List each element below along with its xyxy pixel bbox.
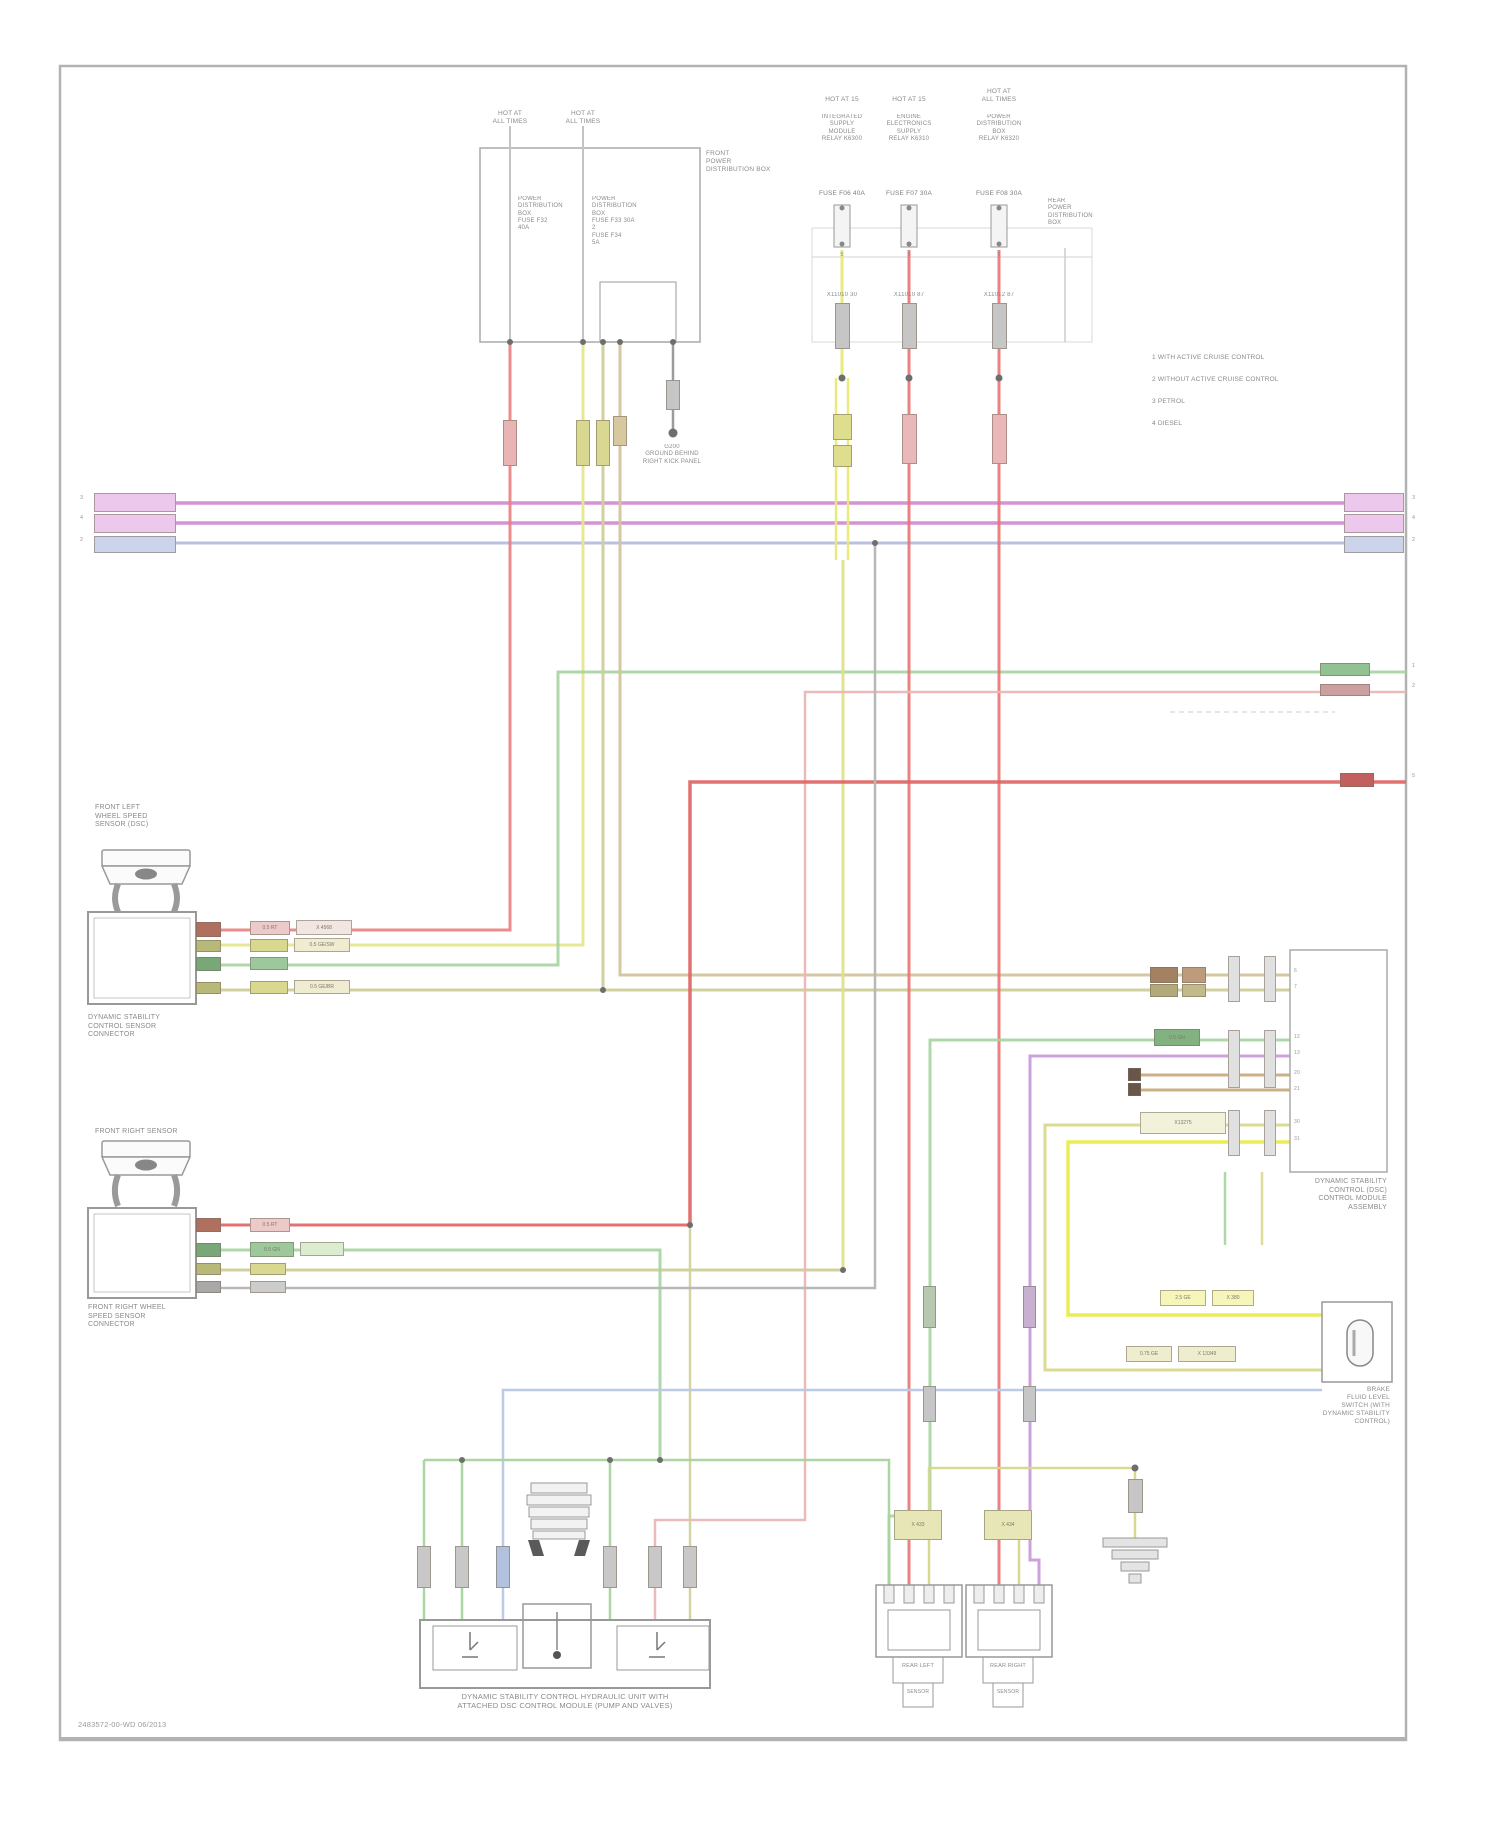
pin-slab xyxy=(1228,956,1240,1002)
bus-connector xyxy=(94,514,176,533)
pin-chip xyxy=(196,982,221,994)
wiring-canvas xyxy=(0,0,1500,1828)
fuse2-header: HOT AT ALL TIMES xyxy=(543,110,623,126)
tick-right-6: 5 xyxy=(1412,773,1415,780)
conn-chip xyxy=(992,303,1007,349)
wire-violet-module xyxy=(1030,1056,1290,1585)
wire-green-bottom xyxy=(424,1460,889,1620)
conn-chip xyxy=(1128,1479,1143,1513)
front-power-box-label: FRONT POWER DISTRIBUTION BOX xyxy=(706,150,771,174)
wire-green-sensor1 xyxy=(197,672,1406,965)
conn-chip xyxy=(923,1386,936,1422)
dsc-module-label: DYNAMIC STABILITY CONTROL (DSC) CONTROL … xyxy=(1237,1178,1387,1212)
bus-connector xyxy=(94,536,176,553)
sensor2-top-label: FRONT RIGHT SENSOR xyxy=(95,1128,178,1137)
brake-fluid-switch xyxy=(1322,1302,1392,1382)
conn-chip xyxy=(648,1546,662,1588)
wire-label: 2.5 GE xyxy=(1160,1290,1206,1306)
bus-connector xyxy=(1344,536,1404,553)
legend-row-3: 3 PETROL xyxy=(1152,398,1185,406)
wire-label xyxy=(250,981,288,994)
wheel-speed-sensor-1 xyxy=(88,850,196,1004)
wire-label xyxy=(250,1281,286,1293)
conn-chip xyxy=(1023,1286,1036,1328)
conn-chip xyxy=(455,1546,469,1588)
pin-slab xyxy=(1264,1030,1276,1088)
fusebox-col2: POWER DISTRIBUTION BOX FUSE F33 30A 2 FU… xyxy=(592,196,637,247)
conn-chip xyxy=(833,445,852,467)
junction-dots xyxy=(459,339,1139,1472)
conn-chip xyxy=(496,1546,510,1588)
pin-chip xyxy=(196,957,221,971)
conn-chip xyxy=(503,420,517,466)
pin-slab xyxy=(1228,1110,1240,1156)
wire-khaki-ground2 xyxy=(929,1468,1135,1585)
shield-terminal xyxy=(1128,1083,1141,1096)
ground1-label: G200 GROUND BEHIND RIGHT KICK PANEL xyxy=(602,444,742,466)
conn-chip xyxy=(596,420,610,466)
relay3-header: HOT AT ALL TIMES xyxy=(949,88,1049,104)
wire-yellow-sensor1 xyxy=(197,342,583,945)
bus-connector xyxy=(1344,493,1404,512)
rear-left-sensor-label: REAR LEFT xyxy=(893,1663,943,1670)
relay3-body: POWER DISTRIBUTION BOX RELAY K6320 xyxy=(949,114,1049,143)
wire-yellow-relay1 xyxy=(197,250,848,1270)
pin-chip xyxy=(196,1243,221,1257)
wire-red-sensor1 xyxy=(197,342,510,930)
module-pin-12: 12 xyxy=(1294,1034,1300,1040)
wire-label xyxy=(1340,773,1374,787)
relay2-pin: 3 xyxy=(859,252,959,259)
module-pin-30: 30 xyxy=(1294,1119,1300,1125)
ground-symbol xyxy=(1103,1538,1167,1583)
pin-slab xyxy=(1264,1110,1276,1156)
wire-label: 0.5 GN xyxy=(250,1242,294,1257)
wire-label: X13275 xyxy=(1140,1112,1226,1134)
wire-tan-module xyxy=(620,342,1290,975)
wire-label: 0.5 RT xyxy=(250,1218,290,1232)
conn-chip xyxy=(835,303,850,349)
relay2-body: ENGINE ELECTRONICS SUPPLY RELAY K6310 xyxy=(859,114,959,143)
wire-label: X 380 xyxy=(1212,1290,1254,1306)
tick-right-4: 1 xyxy=(1412,663,1415,670)
hydraulic-unit-label: DYNAMIC STABILITY CONTROL HYDRAULIC UNIT… xyxy=(365,1692,765,1710)
sensor1-top-label: FRONT LEFT WHEEL SPEED SENSOR (DSC) xyxy=(95,804,148,830)
wire-label: X 434 xyxy=(984,1510,1032,1540)
pin-chip xyxy=(196,1281,221,1293)
wire-label: 0.5 GE/BR xyxy=(294,980,350,994)
pin-chip xyxy=(196,1218,221,1232)
tick-right-2: 4 xyxy=(1412,515,1415,522)
conn-chip xyxy=(683,1546,697,1588)
wire-label xyxy=(300,1242,344,1256)
bus-connector xyxy=(94,493,176,512)
conn-chip xyxy=(902,414,917,464)
wire-label xyxy=(250,1263,286,1275)
conn-chip xyxy=(992,414,1007,464)
relay2-header: HOT AT 15 xyxy=(859,96,959,104)
relay3-conn: X11012 87 xyxy=(949,292,1049,299)
wire-label: X 13349 xyxy=(1178,1346,1236,1362)
wire-label xyxy=(1320,663,1370,676)
wire-label: 0.5 GN xyxy=(1154,1029,1200,1046)
pin-chip xyxy=(196,922,221,937)
pin-slab xyxy=(1264,956,1276,1002)
relay2-fuse: FUSE F07 30A xyxy=(859,190,959,198)
wire-label: 0.5 RT xyxy=(250,921,290,935)
tick-left-2: 4 xyxy=(80,515,83,522)
module-pin-21: 21 xyxy=(1294,1086,1300,1092)
module-pin-7: 7 xyxy=(1294,984,1297,990)
wire-label: 0.5 GE/SW xyxy=(294,938,350,952)
wheel-speed-sensor-2 xyxy=(88,1141,196,1298)
rear-right-sensor-label: REAR RIGHT xyxy=(983,1663,1033,1670)
pin-chip xyxy=(196,1263,221,1275)
dsc-control-module xyxy=(1290,950,1387,1172)
conn-chip xyxy=(417,1546,431,1588)
tick-right-1: 3 xyxy=(1412,495,1415,502)
page-frame xyxy=(60,66,1406,1740)
wire-label xyxy=(1182,984,1206,997)
conn-chip xyxy=(576,420,590,466)
conn-chip xyxy=(902,303,917,349)
brake-switch-label: BRAKE FLUID LEVEL SWITCH (WITH DYNAMIC S… xyxy=(1240,1386,1390,1426)
wire-khaki-loop xyxy=(1045,1125,1322,1370)
legend-row-1: 1 WITH ACTIVE CRUISE CONTROL xyxy=(1152,354,1265,362)
can-bus-wires xyxy=(176,503,1344,543)
tick-left-3: 2 xyxy=(80,537,83,544)
sensor2-bottom-label: FRONT RIGHT WHEEL SPEED SENSOR CONNECTOR xyxy=(88,1304,166,1330)
rear-power-box-label: REAR POWER DISTRIBUTION BOX xyxy=(1048,198,1093,227)
wiring-diagram-page: HOT AT ALL TIMESHOT AT ALL TIMESPOWER DI… xyxy=(0,0,1500,1828)
pin-chip xyxy=(196,940,221,952)
fuse1-header: HOT AT ALL TIMES xyxy=(470,110,550,126)
wire-gray-sensor2 xyxy=(197,543,875,1288)
wire-label xyxy=(1182,967,1206,983)
tick-left-1: 3 xyxy=(80,495,83,502)
relay3-fuse: FUSE F08 30A xyxy=(949,190,1049,198)
footer-code: 2483572-00-WD 06/2013 xyxy=(78,1720,166,1729)
tick-right-5: 2 xyxy=(1412,683,1415,690)
bus-connector xyxy=(1344,514,1404,533)
relay2-conn: X11010 87 xyxy=(859,292,959,299)
rear-left-sensor-label2: SENSOR xyxy=(903,1689,933,1695)
conn-chip xyxy=(613,416,627,446)
fusebox-col1: POWER DISTRIBUTION BOX FUSE F32 40A xyxy=(518,196,563,233)
module-pin-20: 20 xyxy=(1294,1070,1300,1076)
wire-label xyxy=(1150,984,1178,997)
legend-row-4: 4 DIESEL xyxy=(1152,420,1182,428)
conn-chip xyxy=(603,1546,617,1588)
module-pin-6: 6 xyxy=(1294,968,1297,974)
tick-right-3: 2 xyxy=(1412,537,1415,544)
sensor1-bottom-label: DYNAMIC STABILITY CONTROL SENSOR CONNECT… xyxy=(88,1014,160,1040)
wire-label xyxy=(1320,684,1370,696)
rear-right-sensor-label2: SENSOR xyxy=(993,1689,1023,1695)
wire-label xyxy=(1150,967,1178,983)
wire-khaki-sensor1 xyxy=(197,342,1290,990)
pin-slab xyxy=(1228,1030,1240,1088)
wire-label xyxy=(250,939,288,952)
rear-fuse-box xyxy=(812,228,1092,342)
conn-chip xyxy=(923,1286,936,1328)
front-fuse-box xyxy=(480,126,700,342)
conn-chip xyxy=(833,414,852,440)
shield-terminal xyxy=(1128,1068,1141,1081)
module-pin-13: 13 xyxy=(1294,1050,1300,1056)
module-pin-31: 31 xyxy=(1294,1136,1300,1142)
wire-label: X 433 xyxy=(894,1510,942,1540)
fuse-symbols xyxy=(834,205,1007,247)
conn-chip xyxy=(666,380,680,410)
wire-label: X 4568 xyxy=(296,920,352,935)
wire-label xyxy=(250,957,288,970)
legend-row-2: 2 WITHOUT ACTIVE CRUISE CONTROL xyxy=(1152,376,1279,384)
wire-label: 0.75 GE xyxy=(1126,1346,1172,1362)
conn-chip xyxy=(1023,1386,1036,1422)
relay3-pin: 6 xyxy=(949,252,1049,259)
